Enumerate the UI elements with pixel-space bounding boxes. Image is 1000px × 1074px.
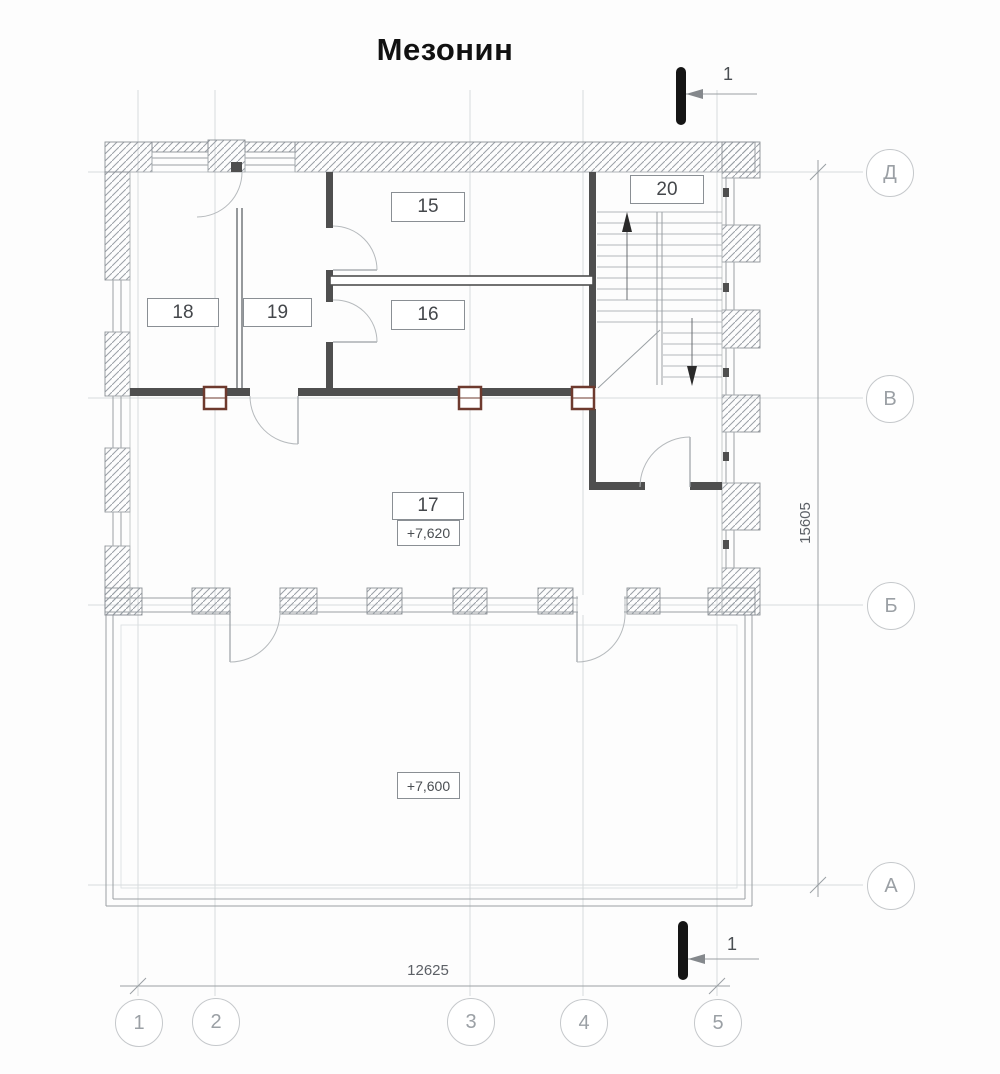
section-cut-top-label: 1 [723,64,733,85]
plan-linework [0,0,1000,1074]
room-label-16: 16 [391,300,465,330]
room-label-19: 19 [243,298,312,327]
axis-bubble-v: В [866,375,914,423]
room-label-15: 15 [391,192,465,222]
room-label-17: 17 [392,492,464,520]
axis-bubble-4: 4 [560,999,608,1047]
axis-bubble-3: 3 [447,998,495,1046]
axis-bubble-1: 1 [115,999,163,1047]
axis-bubble-b: Б [867,582,915,630]
dimension-height-label: 15605 [797,493,815,553]
axis-bubble-a: А [867,862,915,910]
elevation-label-terrace: +7,600 [397,772,460,799]
elevation-label-mezzanine: +7,620 [397,520,460,546]
axis-bubble-2: 2 [192,998,240,1046]
terrace-outline [106,615,752,906]
dimension-width-label: 12625 [390,962,466,979]
axis-bubble-5: 5 [694,999,742,1047]
floor-plan-sheet: Мезонин 1 1 15 16 17 18 19 20 +7,620 +7,… [0,0,1000,1074]
staircase [597,212,722,388]
room-label-20: 20 [630,175,704,204]
room-label-18: 18 [147,298,219,327]
section-cut-bottom-label: 1 [727,934,737,955]
drawing-title: Мезонин [340,32,550,68]
axis-bubble-d: Д [866,149,914,197]
